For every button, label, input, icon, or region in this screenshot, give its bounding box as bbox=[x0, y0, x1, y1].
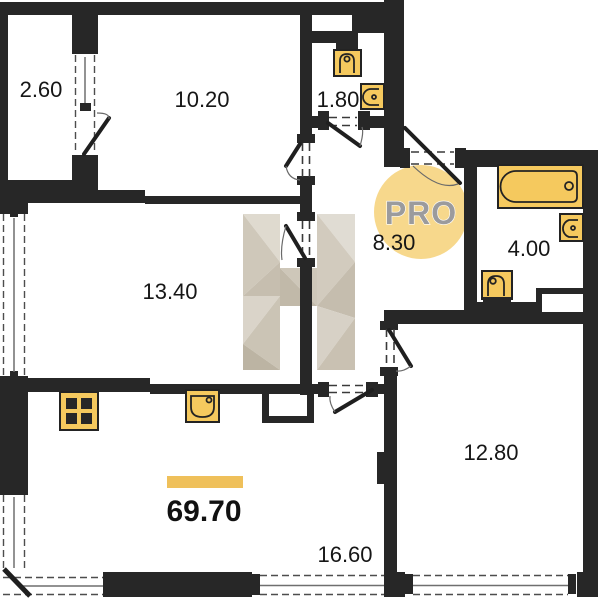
room-label-balcony: 2.60 bbox=[20, 77, 63, 102]
room-label-hallway: 8.30 bbox=[373, 230, 416, 255]
stove-icon bbox=[60, 392, 98, 430]
total-area-accent-bar bbox=[167, 476, 243, 488]
bathroom-toilet-icon bbox=[482, 271, 512, 314]
wall-niche bbox=[542, 294, 583, 312]
kitchen-sink-icon bbox=[186, 390, 219, 422]
floor-plan-svg: PRO bbox=[0, 0, 600, 600]
room-label-wc: 1.80 bbox=[317, 87, 360, 112]
room-label-bedroom-top: 10.20 bbox=[174, 87, 229, 112]
room-label-room-right: 12.80 bbox=[463, 440, 518, 465]
room-label-room-left: 13.40 bbox=[142, 279, 197, 304]
room-label-living-kitchen: 16.60 bbox=[317, 542, 372, 567]
room-label-bathroom: 4.00 bbox=[508, 236, 551, 261]
bathroom-sink-icon bbox=[560, 214, 583, 241]
total-area-value: 69.70 bbox=[166, 495, 241, 528]
total-area: 69.70 bbox=[166, 476, 243, 528]
floor-plan: PRO bbox=[0, 0, 600, 600]
toilet-icon bbox=[334, 36, 361, 76]
wc-sink-icon bbox=[361, 84, 384, 109]
bathtub-icon bbox=[498, 165, 583, 208]
pro-badge-label: PRO bbox=[385, 195, 457, 231]
